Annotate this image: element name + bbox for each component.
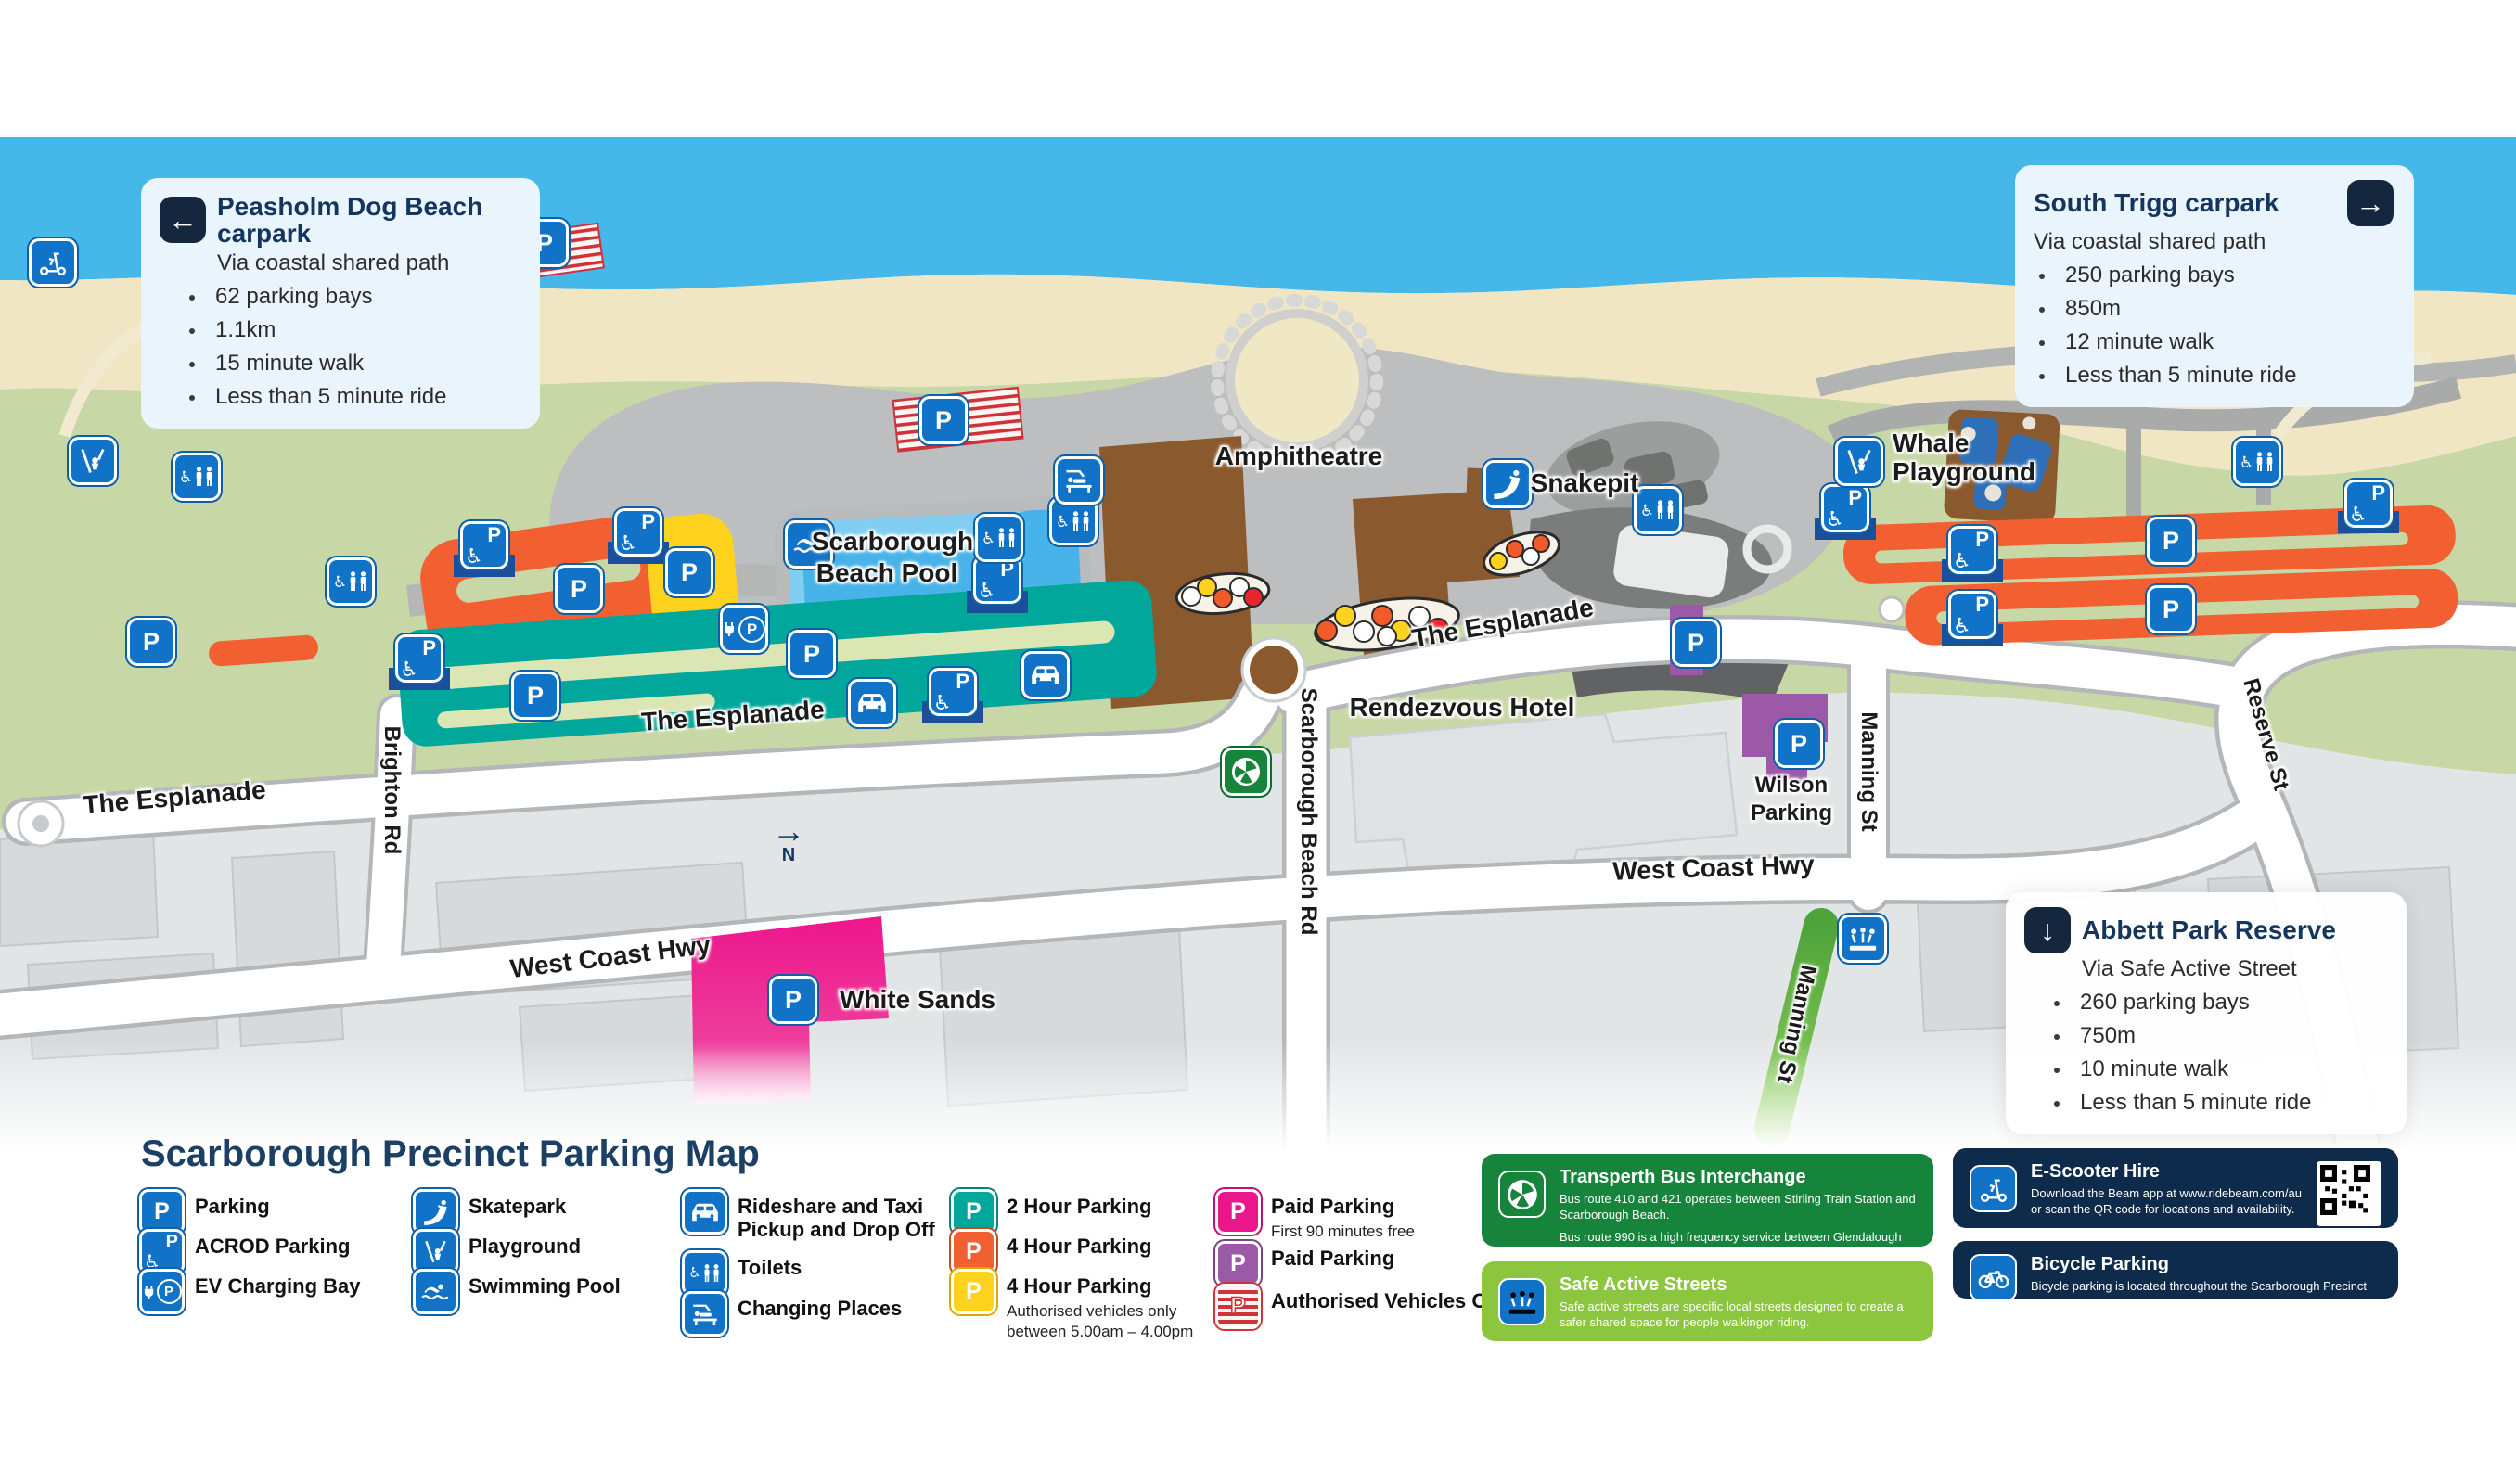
infobox-peasholm: ← Peasholm Dog Beach carpark Via coastal… (141, 178, 540, 429)
safe-active-street-icon (1839, 915, 1887, 963)
acrod-parking-icon: ♿P (1821, 484, 1869, 532)
poi-label-snakepit: Snakepit (1531, 468, 1639, 498)
poi-label-amphitheatre: Amphitheatre (1215, 441, 1382, 471)
panel-bicycle-parking: Bicycle Parking Bicycle parking is locat… (1953, 1241, 2398, 1298)
parking-icon: P (139, 1189, 185, 1235)
toilets-icon: ♿ (2233, 438, 2281, 486)
poi-label-pool-line1: Scarborough (812, 527, 973, 556)
ev-charging-icon: P (720, 605, 768, 653)
legend-changing-places: Changing Places (682, 1291, 902, 1337)
bicycle-parking-icon (1970, 1254, 2017, 1301)
rideshare-icon (848, 679, 896, 727)
poi-label-wilson-line2: Parking (1751, 800, 1832, 826)
qr-code (2317, 1161, 2381, 1226)
escooter-icon (29, 238, 77, 287)
poi-label-pool-line2: Beach Pool (816, 558, 957, 588)
parking-icon: P (1672, 619, 1720, 667)
parking-icon: P (2147, 585, 2195, 633)
panel-title: Bicycle Parking (2031, 1254, 2367, 1275)
infobox-title: Peasholm Dog Beach carpark (217, 193, 520, 248)
legend-toilets: ♿ Toilets (682, 1250, 802, 1296)
legend-skatepark: Skatepark (413, 1189, 566, 1235)
arrow-left-icon: ← (160, 197, 206, 243)
playground-icon (413, 1229, 458, 1274)
acrod-parking-icon: ♿P (2344, 480, 2393, 528)
acrod-parking-icon: ♿P (139, 1229, 185, 1274)
panel-transperth: Transperth Bus Interchange Bus route 410… (1482, 1154, 1933, 1247)
legend-rideshare: Rideshare and TaxiPickup and Drop Off (682, 1189, 935, 1241)
parking-icon: P (2147, 517, 2195, 565)
infobox-bullets: 260 parking bays 750m 10 minute walk Les… (2024, 990, 2386, 1116)
parking-icon: P (511, 672, 559, 720)
panel-title: E-Scooter Hire (2031, 1161, 2303, 1183)
acrod-parking-icon: ♿P (614, 508, 662, 556)
rideshare-icon (682, 1189, 727, 1235)
parking-icon: P (769, 976, 817, 1024)
poi-label-wilson-line1: Wilson (1755, 773, 1828, 799)
four-hour-parking-icon: P (951, 1229, 996, 1274)
toilets-icon: ♿ (682, 1250, 727, 1296)
acrod-parking-icon: ♿P (973, 556, 1021, 604)
infobox-title: Abbett Park Reserve (2082, 916, 2336, 943)
arrow-right-icon: → (2347, 180, 2394, 226)
panel-title: Safe Active Streets (1560, 1274, 1917, 1296)
poi-label-whale-line2: Playground (1893, 457, 2035, 487)
north-arrow: → N (772, 814, 805, 864)
two-hour-parking-icon: P (951, 1189, 996, 1235)
toilets-icon: ♿ (173, 453, 221, 501)
legend-acrod: ♿P ACROD Parking (139, 1229, 350, 1274)
legend-playground: Playground (413, 1229, 581, 1274)
skatepark-icon (1483, 460, 1532, 508)
playground-icon (1835, 438, 1883, 486)
acrod-parking-icon: ♿P (929, 668, 977, 716)
infobox-subtitle: Via Safe Active Street (2082, 956, 2386, 982)
toilets-icon: ♿ (975, 514, 1023, 562)
poi-label-whale-line1: Whale (1893, 429, 1969, 458)
four-hour-authorised-parking-icon: P (951, 1269, 996, 1314)
bus-interchange-icon (1222, 748, 1270, 796)
amphitheatre-stage (1230, 313, 1364, 447)
legend-paid-pink: P Paid ParkingFirst 90 minutes free (1215, 1189, 1415, 1242)
escooter-icon (1970, 1165, 2017, 1212)
infobox-bullets: 62 parking bays 1.1km 15 minute walk Les… (160, 284, 520, 410)
road-label-scarborough-beach-rd: Scarborough Beach Rd (1295, 688, 1321, 936)
acrod-parking-icon: ♿P (1948, 526, 1996, 574)
poi-label-white-sands: White Sands (840, 985, 995, 1015)
paid-parking-pink-icon: P (1215, 1189, 1261, 1235)
parking-map-poster: P P P P P P P P P P P P ♿P ♿P ♿P ♿P ♿P ♿… (0, 0, 2516, 1484)
parking-icon: P (919, 396, 968, 444)
legend-swimming-pool: Swimming Pool (413, 1269, 621, 1314)
infobox-bullets: 250 parking bays 850m 12 minute walk Les… (2034, 262, 2394, 389)
infobox-south-trigg: South Trigg carpark → Via coastal shared… (2015, 165, 2414, 407)
poi-label-rendezvous-hotel: Rendezvous Hotel (1350, 693, 1575, 723)
legend-ev: P EV Charging Bay (139, 1269, 360, 1314)
authorised-vehicles-icon: P (1215, 1284, 1261, 1329)
swimming-pool-icon (413, 1269, 458, 1314)
legend-paid-purple: P Paid Parking (1215, 1241, 1394, 1286)
changing-places-icon (1055, 456, 1103, 505)
changing-places-icon (682, 1291, 727, 1337)
legend-two-hour: P 2 Hour Parking (951, 1189, 1151, 1235)
toilets-icon: ♿ (327, 557, 375, 606)
panel-safe-active-streets: Safe Active Streets Safe active streets … (1482, 1261, 1933, 1341)
infobox-abbett-park: ↓ Abbett Park Reserve Via Safe Active St… (2006, 892, 2407, 1134)
parking-icon: P (788, 630, 836, 678)
road-label-brighton-rd: Brighton Rd (379, 726, 404, 855)
ev-charging-icon: P (139, 1269, 185, 1314)
infobox-subtitle: Via coastal shared path (2034, 229, 2394, 255)
panel-escooter: E-Scooter Hire Download the Beam app at … (1953, 1148, 2398, 1228)
legend-authorised: P Authorised Vehicles Only (1215, 1284, 1517, 1329)
infobox-title: South Trigg carpark (2034, 189, 2279, 216)
legend-four-hour: P 4 Hour Parking (951, 1229, 1151, 1274)
infobox-subtitle: Via coastal shared path (217, 250, 520, 276)
rideshare-icon (1021, 651, 1070, 699)
parking-icon: P (555, 565, 603, 613)
legend-parking: P Parking (139, 1189, 270, 1235)
legend-four-hour-authorised: P 4 Hour Parking Authorised vehicles onl… (951, 1269, 1193, 1342)
acrod-parking-icon: ♿P (1948, 591, 1996, 639)
skatepark-icon (413, 1189, 458, 1235)
parking-icon: P (127, 618, 175, 666)
playground-icon (69, 437, 117, 485)
acrod-parking-icon: ♿P (395, 634, 443, 683)
panel-title: Transperth Bus Interchange (1560, 1167, 1917, 1188)
bus-interchange-icon (1498, 1171, 1546, 1218)
acrod-parking-icon: ♿P (460, 521, 508, 569)
parking-icon: P (1775, 720, 1823, 768)
paid-parking-purple-icon: P (1215, 1241, 1261, 1286)
toilets-icon: ♿ (1634, 486, 1682, 534)
arrow-down-icon: ↓ (2024, 907, 2071, 953)
road-label-manning-st: Manning St (1855, 711, 1881, 831)
parking-icon: P (665, 548, 713, 596)
legend-title: Scarborough Precinct Parking Map (141, 1133, 760, 1175)
safe-active-street-icon (1498, 1278, 1546, 1325)
